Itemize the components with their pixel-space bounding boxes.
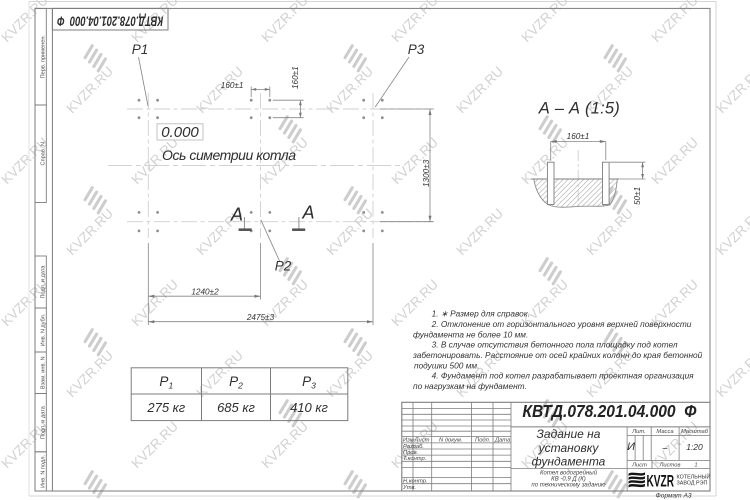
svg-text:КОТЕЛЬНЫЙ: КОТЕЛЬНЫЙ bbox=[677, 472, 711, 480]
svg-text:по техническому заданию: по техническому заданию bbox=[531, 483, 606, 489]
svg-text:KVZR.RU: KVZR.RU bbox=[584, 206, 637, 259]
svg-text:Масса: Масса bbox=[656, 429, 674, 435]
svg-text:N докум.: N докум. bbox=[439, 437, 462, 443]
svg-text:Р3: Р3 bbox=[302, 374, 316, 391]
svg-text:Разраб.: Разраб. bbox=[403, 444, 424, 450]
svg-text:установку: установку bbox=[538, 441, 600, 455]
svg-text:275 кг: 275 кг bbox=[146, 400, 185, 415]
svg-text:KVZR.RU: KVZR.RU bbox=[389, 135, 442, 188]
svg-text:160±1: 160±1 bbox=[291, 66, 300, 89]
svg-text:160±1: 160±1 bbox=[221, 81, 244, 90]
svg-text:KVZR.RU: KVZR.RU bbox=[519, 0, 572, 45]
svg-text:А: А bbox=[230, 205, 243, 225]
svg-text:А: А bbox=[301, 203, 314, 223]
svg-text:160±1: 160±1 bbox=[567, 132, 590, 141]
svg-text:P1: P1 bbox=[132, 42, 149, 57]
svg-text:KVZR.RU: KVZR.RU bbox=[454, 206, 507, 259]
svg-text:–: – bbox=[661, 443, 668, 453]
svg-text:1: 1 bbox=[694, 462, 697, 468]
svg-text:Дата: Дата bbox=[494, 437, 511, 443]
svg-text:Масштаб: Масштаб bbox=[681, 429, 709, 435]
svg-text:KVZR.RU: KVZR.RU bbox=[324, 206, 377, 259]
svg-text:KVZR.RU: KVZR.RU bbox=[714, 64, 750, 117]
svg-text:1. ∗ Размер для справок.: 1. ∗ Размер для справок. bbox=[432, 309, 530, 319]
svg-text:Взам. инв. N: Взам. инв. N bbox=[40, 356, 46, 389]
svg-text:KVZR.RU: KVZR.RU bbox=[454, 64, 507, 117]
svg-text:410 кг: 410 кг bbox=[290, 400, 328, 415]
svg-text:KVZR.RU: KVZR.RU bbox=[714, 206, 750, 259]
svg-text:KVZR.RU: KVZR.RU bbox=[649, 0, 702, 45]
svg-text:Котел водогрейный: Котел водогрейный bbox=[540, 469, 598, 476]
svg-text:Справ. N: Справ. N bbox=[40, 142, 46, 165]
svg-text:Листов: Листов bbox=[658, 462, 680, 468]
svg-text:KVZR.RU: KVZR.RU bbox=[64, 206, 117, 259]
svg-text:КВТД.078.201.04.000 Ф: КВТД.078.201.04.000 Ф bbox=[57, 13, 163, 29]
svg-text:KVZR.RU: KVZR.RU bbox=[64, 64, 117, 117]
svg-text:KVZR.RU: KVZR.RU bbox=[324, 348, 377, 401]
svg-text:1240±2: 1240±2 bbox=[191, 287, 219, 296]
svg-text:Лист: Лист bbox=[414, 437, 430, 443]
svg-text:подушки 500 мм.: подушки 500 мм. bbox=[414, 360, 479, 370]
svg-text:фундамента: фундамента bbox=[532, 455, 606, 469]
svg-text:KVZR.RU: KVZR.RU bbox=[129, 419, 182, 472]
svg-text:P2: P2 bbox=[275, 259, 292, 274]
svg-text:Лит.: Лит. bbox=[631, 429, 646, 435]
svg-text:3. В случае отсутствия бет: 3. В случае отсутствия бетонного пола пл… bbox=[432, 340, 678, 350]
svg-text:685 кг: 685 кг bbox=[217, 400, 255, 415]
svg-text:KVZR.RU: KVZR.RU bbox=[259, 419, 312, 472]
svg-text:забетонировать. Расстояние о: забетонировать. Расстояние от осей крайн… bbox=[412, 350, 703, 360]
svg-text:Пров.: Пров. bbox=[403, 450, 418, 456]
svg-text:KVZR.RU: KVZR.RU bbox=[129, 277, 182, 330]
svg-text:Лист: Лист bbox=[631, 462, 647, 468]
svg-text:Подп. и дата: Подп. и дата bbox=[40, 265, 46, 299]
svg-text:KVZR.RU: KVZR.RU bbox=[389, 0, 442, 45]
svg-text:Формат А3: Формат А3 bbox=[655, 492, 691, 499]
svg-text:2. Отклонение от горизонтал: 2. Отклонение от горизонтального уровня … bbox=[431, 319, 692, 329]
svg-text:KVZR.RU: KVZR.RU bbox=[649, 135, 702, 188]
svg-text:P3: P3 bbox=[408, 42, 425, 57]
svg-text:Р2: Р2 bbox=[229, 374, 243, 391]
svg-text:А – А (1:5): А – А (1:5) bbox=[538, 100, 620, 118]
svg-text:Н.контр.: Н.контр. bbox=[403, 479, 428, 485]
svg-text:1300±3: 1300±3 bbox=[422, 159, 431, 187]
svg-text:KVZR: KVZR bbox=[647, 471, 675, 490]
svg-text:по нагрузкам на фундамент.: по нагрузкам на фундамент. bbox=[413, 381, 527, 391]
svg-text:Инв. N дубл.: Инв. N дубл. bbox=[40, 313, 46, 346]
svg-text:KVZR.RU: KVZR.RU bbox=[64, 348, 117, 401]
svg-text:2475±3: 2475±3 bbox=[246, 313, 275, 322]
svg-text:КВТД.078.201.04.000 Ф: КВТД.078.201.04.000 Ф bbox=[522, 401, 696, 421]
svg-text:Р1: Р1 bbox=[159, 374, 173, 391]
svg-text:0.000: 0.000 bbox=[161, 124, 199, 141]
svg-text:4. Фундамент под котел раз: 4. Фундамент под котел разрабатывает про… bbox=[432, 371, 695, 381]
svg-text:фундамента не более 10 мм.: фундамента не более 10 мм. bbox=[413, 329, 528, 339]
svg-text:Т.контр.: Т.контр. bbox=[403, 456, 426, 462]
svg-text:Подп. и дата: Подп. и дата bbox=[40, 405, 46, 439]
svg-text:KVZR.RU: KVZR.RU bbox=[714, 348, 750, 401]
svg-text:И: И bbox=[627, 441, 635, 453]
svg-text:ЗАВОД РЭП: ЗАВОД РЭП bbox=[677, 481, 708, 487]
svg-text:KVZR.RU: KVZR.RU bbox=[259, 0, 312, 45]
svg-text:1:20: 1:20 bbox=[686, 442, 703, 452]
svg-text:Инв. N подл.: Инв. N подл. bbox=[40, 455, 46, 488]
svg-text:Задание на: Задание на bbox=[537, 427, 601, 441]
svg-text:50±1: 50±1 bbox=[633, 187, 642, 205]
svg-text:KVZR.RU: KVZR.RU bbox=[324, 64, 377, 117]
svg-text:Перв. применен.: Перв. применен. bbox=[40, 35, 46, 79]
svg-text:Ось симетрии котла: Ось симетрии котла bbox=[162, 147, 296, 163]
svg-text:Подп.: Подп. bbox=[475, 437, 490, 443]
svg-text:Утв.: Утв. bbox=[402, 485, 416, 491]
